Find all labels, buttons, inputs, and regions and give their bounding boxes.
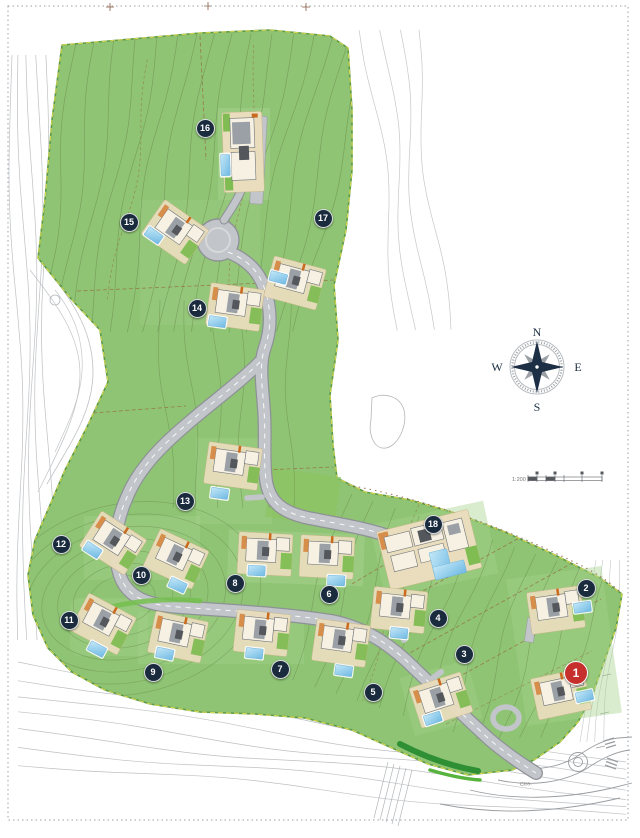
plot-marker-1[interactable]: 1 [564,661,588,685]
plot-marker-9[interactable]: 9 [144,663,163,682]
swimming-pool [208,316,226,328]
swimming-pool [335,665,353,677]
plot-marker-15[interactable]: 15 [120,213,139,232]
plot-marker-6[interactable]: 6 [320,585,339,604]
contour-line [17,55,30,640]
plot-marker-3[interactable]: 3 [455,645,474,664]
compass-west-label: W [491,360,503,374]
contour-line [359,30,397,330]
terrace-deck [241,536,247,549]
contour-line [9,55,23,640]
compass-south-label: S [534,400,541,414]
garden-patch [342,556,354,573]
plot-marker-2[interactable]: 2 [577,579,596,598]
scale-ratio-label: 1:200 [512,477,526,483]
compass-rose: N S E W [491,325,581,414]
plot-marker-12[interactable]: 12 [52,535,71,554]
plot-marker-11[interactable]: 11 [60,611,79,630]
survey-circle [50,295,60,305]
garden-patch [247,466,260,483]
contour-line [380,30,416,330]
house-footprint [218,111,265,192]
plot-marker-14[interactable]: 14 [188,299,207,318]
compass-east-label: E [574,360,581,374]
knoll-contour [370,395,405,448]
plot-marker-10[interactable]: 10 [132,566,151,585]
garden-patch [355,643,368,660]
swimming-pool [221,154,231,175]
plot-marker-16[interactable]: 16 [196,119,215,138]
plot-marker-8[interactable]: 8 [226,574,245,593]
swimming-pool [573,601,591,613]
garden-patch [413,610,426,627]
garden-patch [249,307,262,324]
swimming-pool [248,565,266,576]
site-plan-map: N S E W 1:200 Ctra. [0,0,640,838]
swimming-pool [210,487,228,499]
house-footprint [205,282,265,334]
road-name-label: Ctra. [520,781,533,788]
swimming-pool [390,627,408,639]
plot-marker-13[interactable]: 13 [176,492,195,511]
terrace-deck [303,539,309,552]
contour-line [419,30,451,330]
swimming-pool [245,647,263,659]
plot-marker-5[interactable]: 5 [364,683,383,702]
compass-north-label: N [533,325,542,339]
scale-bar: 1:200 [512,472,604,484]
site-plan-page: N S E W 1:200 Ctra. 12345678910111213141… [0,0,640,838]
garden-patch [276,633,289,650]
house-footprint [237,532,293,579]
plot-marker-17[interactable]: 17 [314,209,333,228]
stepped-path-hatch [374,762,412,826]
plot-marker-7[interactable]: 7 [271,660,290,679]
plot-marker-4[interactable]: 4 [429,609,448,628]
garden-patch [280,553,292,570]
plot-marker-18[interactable]: 18 [424,515,443,534]
